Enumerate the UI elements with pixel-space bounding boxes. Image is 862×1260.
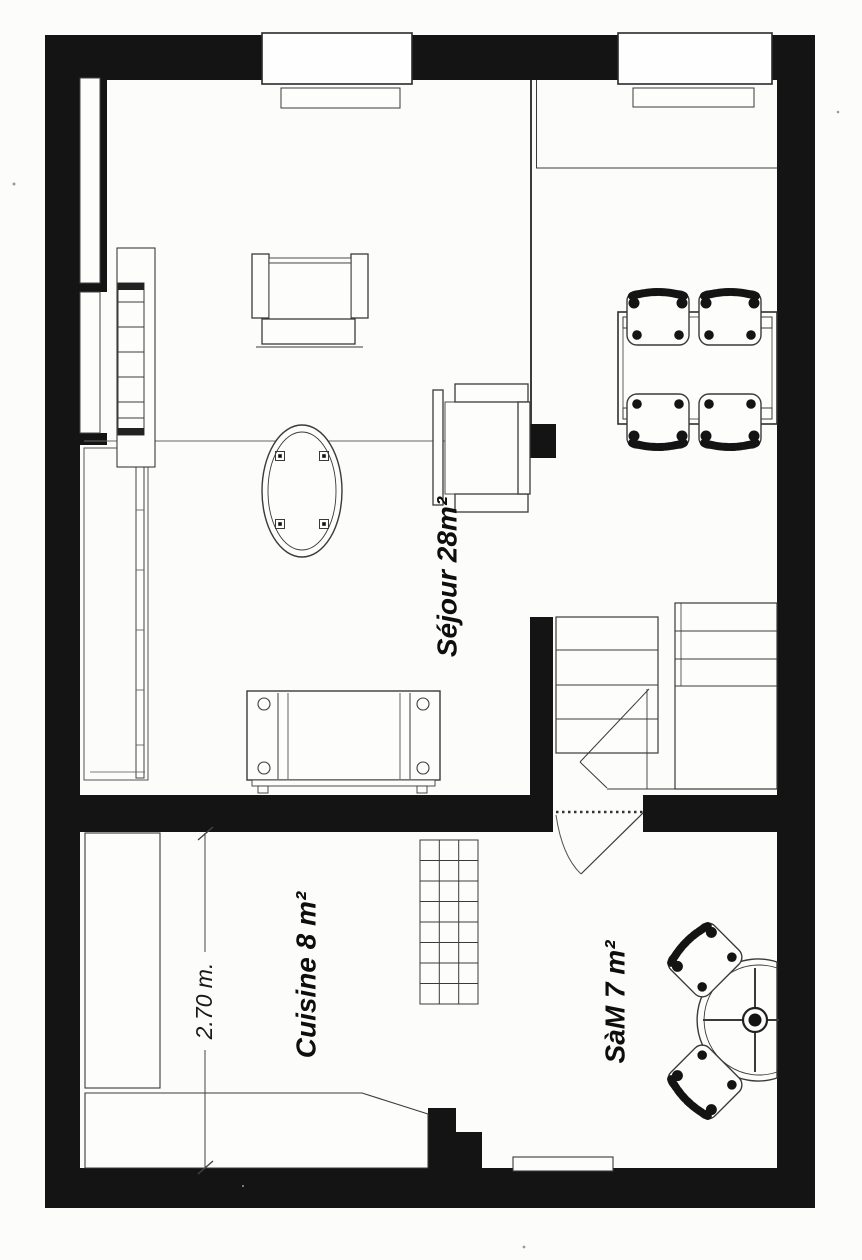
- floor-plan-drawing: Séjour 28m² Cuisine 8 m² SàM 7 m² 2.70 m…: [0, 0, 862, 1260]
- oval-coffee-table: [262, 425, 342, 557]
- kitchen-counter-bottom: [85, 1093, 428, 1168]
- kitchen-counters: [85, 833, 428, 1168]
- radiator-top-left: [281, 88, 400, 108]
- room-label-cuisine: Cuisine 8 m²: [291, 891, 322, 1058]
- wall-bottom: [45, 1168, 815, 1208]
- left-wall-sill-1: [80, 283, 107, 292]
- dimension-label: 2.70 m.: [191, 963, 217, 1041]
- wall-left: [45, 35, 80, 1208]
- door-swing-arc: [556, 815, 581, 874]
- room-label-sejour: Séjour 28m²: [432, 496, 463, 657]
- left-wall-jamb: [100, 78, 107, 283]
- stairs: [556, 603, 777, 789]
- sofa: [247, 691, 440, 793]
- door: [556, 812, 643, 874]
- dining-chair: [627, 291, 689, 345]
- left-wall-sill-2: [80, 433, 107, 445]
- dining-chair: [627, 394, 689, 448]
- radiator-top-right: [633, 88, 754, 107]
- wall-divider-right: [643, 795, 777, 832]
- window-top-left: [262, 33, 412, 84]
- window-top-right: [618, 33, 772, 84]
- kitchen-grid-shelf: [420, 840, 478, 1004]
- radiator-left-unit: [117, 248, 155, 467]
- armchair-top: [252, 254, 368, 347]
- dining-chair: [699, 291, 761, 345]
- wall-right: [777, 35, 815, 1208]
- left-window-lower: [80, 292, 100, 433]
- kitchen-wall-step-2: [456, 1132, 482, 1170]
- floor-plan-page: Séjour 28m² Cuisine 8 m² SàM 7 m² 2.70 m…: [0, 0, 862, 1260]
- french-window-leaf: [136, 452, 144, 778]
- wall-stair-stub: [530, 617, 553, 795]
- kitchen-counter-left: [85, 833, 160, 1088]
- door-leaf: [581, 813, 643, 874]
- kitchen-wall-step-1: [428, 1108, 456, 1170]
- armchair-right: [433, 384, 530, 512]
- wall-divider-left: [80, 795, 553, 832]
- wall-shelf: [513, 1157, 613, 1171]
- dining-chair: [699, 394, 761, 448]
- chimney-block: [529, 424, 556, 458]
- room-label-sam: SàM 7 m²: [600, 940, 631, 1064]
- left-window-upper: [80, 78, 100, 283]
- stair-winder-line: [580, 762, 607, 788]
